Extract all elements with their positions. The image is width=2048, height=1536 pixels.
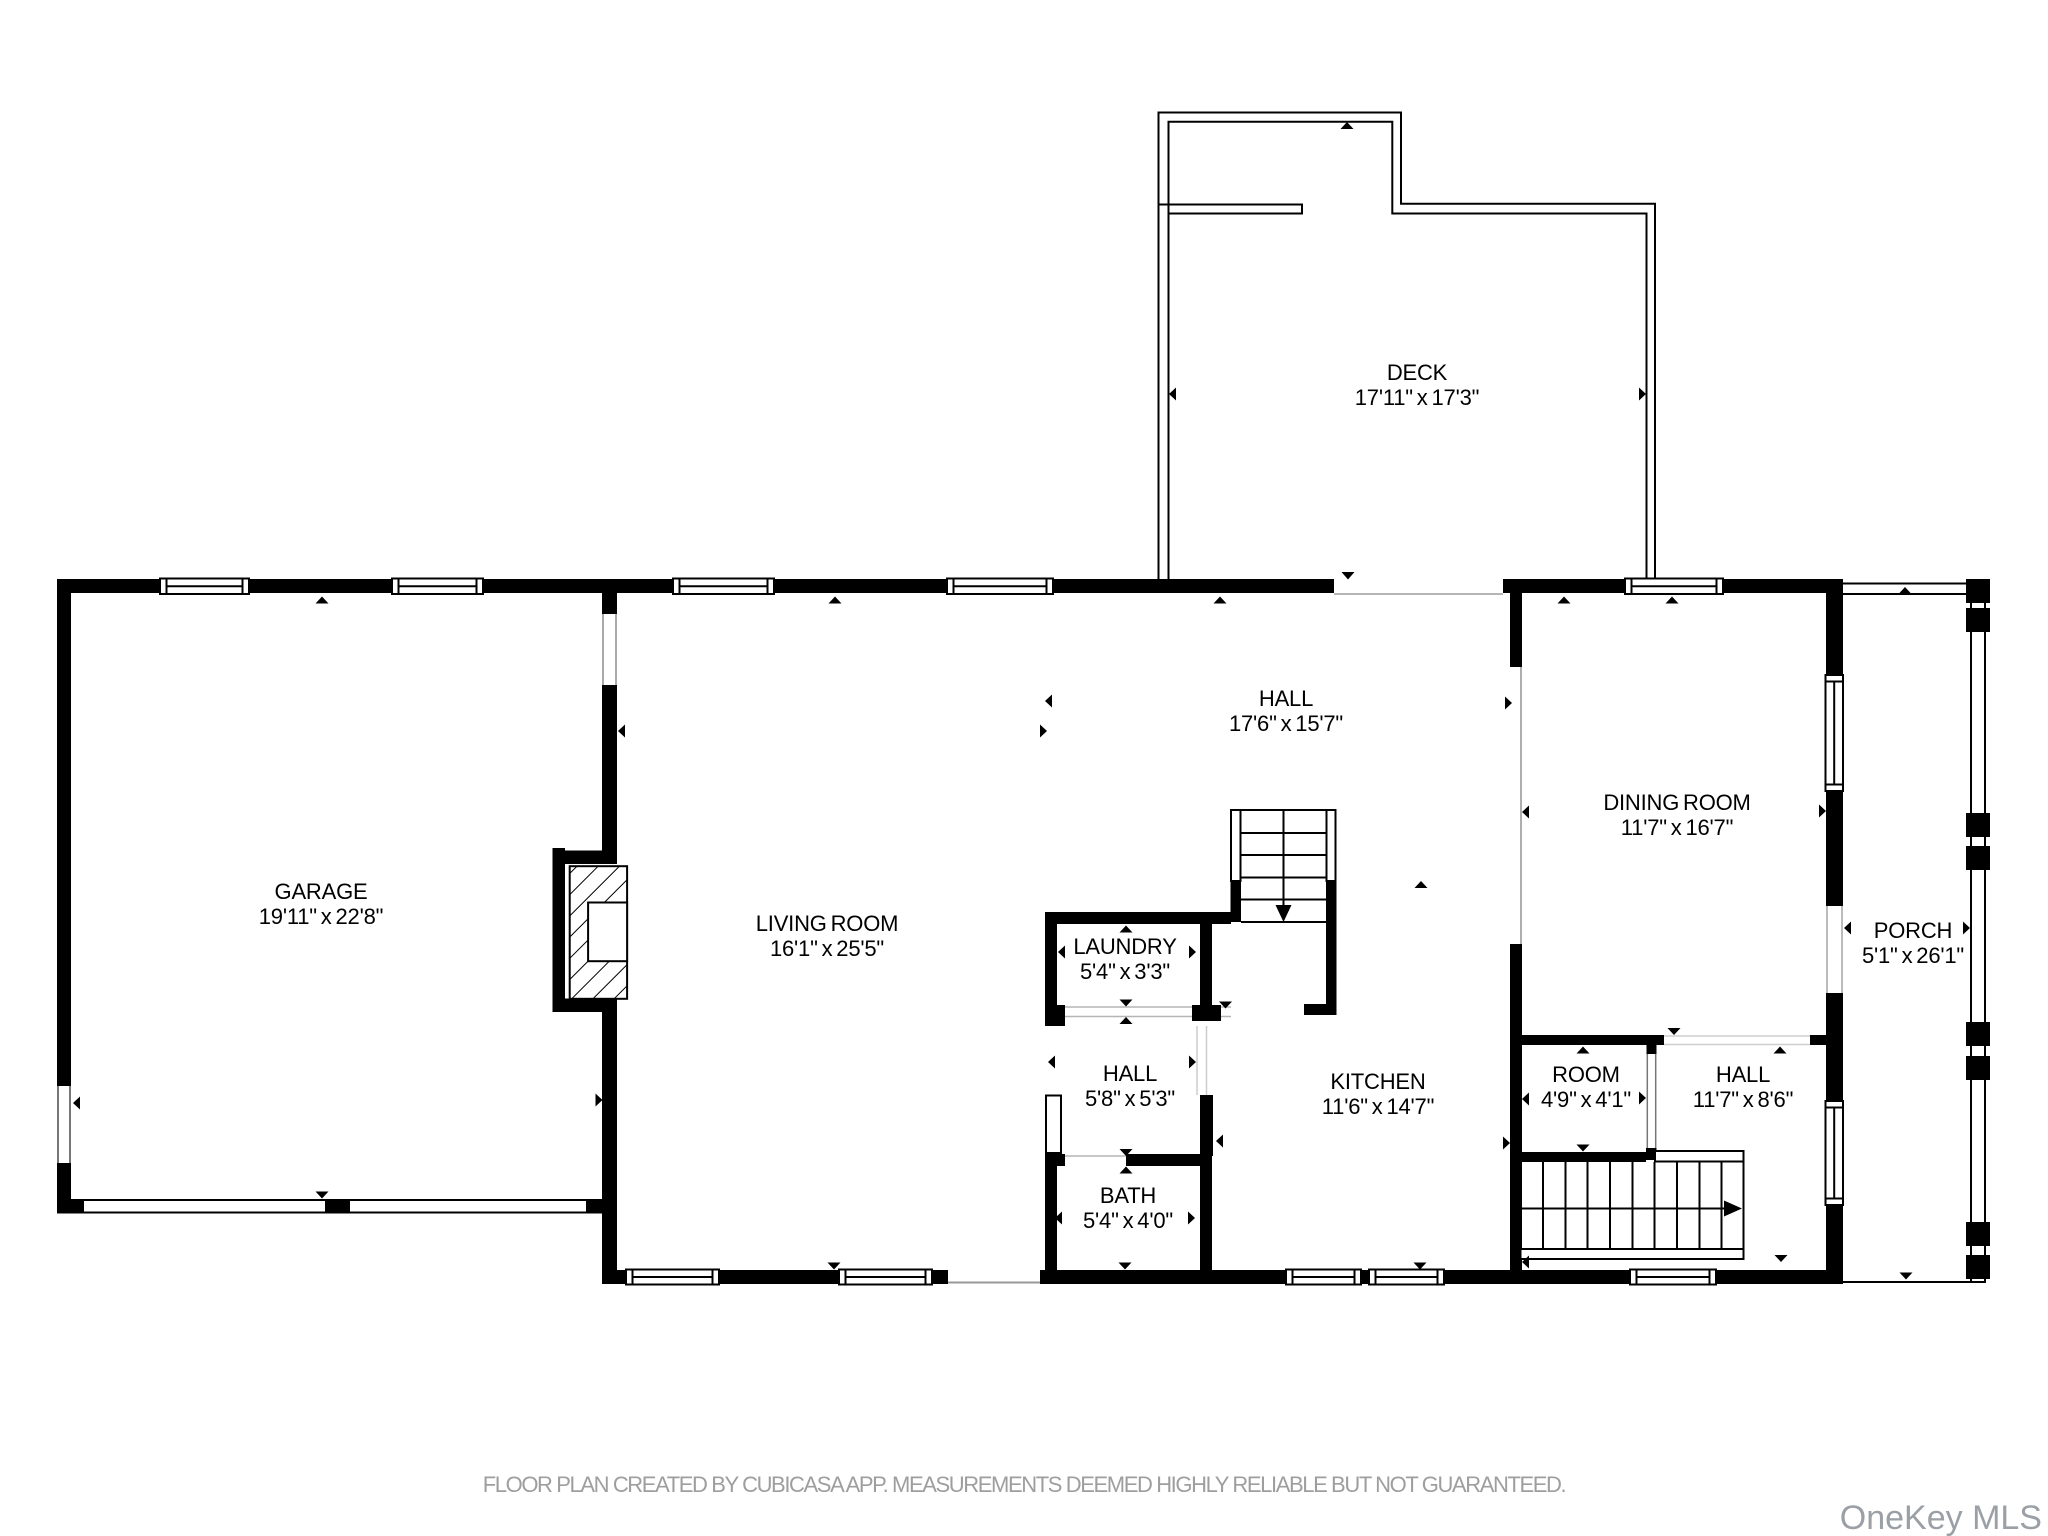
svg-text:GARAGE: GARAGE <box>275 879 368 904</box>
svg-text:PORCH: PORCH <box>1874 918 1952 943</box>
svg-text:DINING ROOM: DINING ROOM <box>1603 790 1750 815</box>
svg-text:11'6" x 14'7": 11'6" x 14'7" <box>1322 1094 1434 1119</box>
svg-text:LAUNDRY: LAUNDRY <box>1073 934 1177 959</box>
svg-text:DECK: DECK <box>1387 360 1448 385</box>
svg-text:HALL: HALL <box>1103 1061 1157 1086</box>
svg-text:5'4" x 3'3": 5'4" x 3'3" <box>1080 959 1170 984</box>
svg-text:16'1" x 25'5": 16'1" x 25'5" <box>770 936 884 961</box>
svg-text:HALL: HALL <box>1259 686 1313 711</box>
svg-text:BATH: BATH <box>1100 1183 1156 1208</box>
svg-text:17'11" x 17'3": 17'11" x 17'3" <box>1355 385 1479 410</box>
svg-text:17'6" x 15'7": 17'6" x 15'7" <box>1229 711 1343 736</box>
svg-text:KITCHEN: KITCHEN <box>1330 1069 1425 1094</box>
svg-text:LIVING ROOM: LIVING ROOM <box>756 911 899 936</box>
svg-text:OneKey MLS: OneKey MLS <box>1840 1499 2042 1536</box>
svg-text:FLOOR PLAN CREATED BY CUBICASA: FLOOR PLAN CREATED BY CUBICASA APP. MEAS… <box>483 1472 1566 1497</box>
svg-text:5'8" x 5'3": 5'8" x 5'3" <box>1085 1086 1175 1111</box>
svg-text:5'4" x 4'0": 5'4" x 4'0" <box>1083 1208 1173 1233</box>
svg-text:11'7" x 8'6": 11'7" x 8'6" <box>1693 1087 1793 1112</box>
svg-text:4'9" x 4'1": 4'9" x 4'1" <box>1541 1087 1631 1112</box>
svg-text:11'7" x 16'7": 11'7" x 16'7" <box>1621 815 1733 840</box>
svg-text:HALL: HALL <box>1716 1062 1770 1087</box>
svg-text:ROOM: ROOM <box>1552 1062 1620 1087</box>
svg-text:5'1" x 26'1": 5'1" x 26'1" <box>1862 943 1964 968</box>
svg-text:19'11" x 22'8": 19'11" x 22'8" <box>259 904 383 929</box>
